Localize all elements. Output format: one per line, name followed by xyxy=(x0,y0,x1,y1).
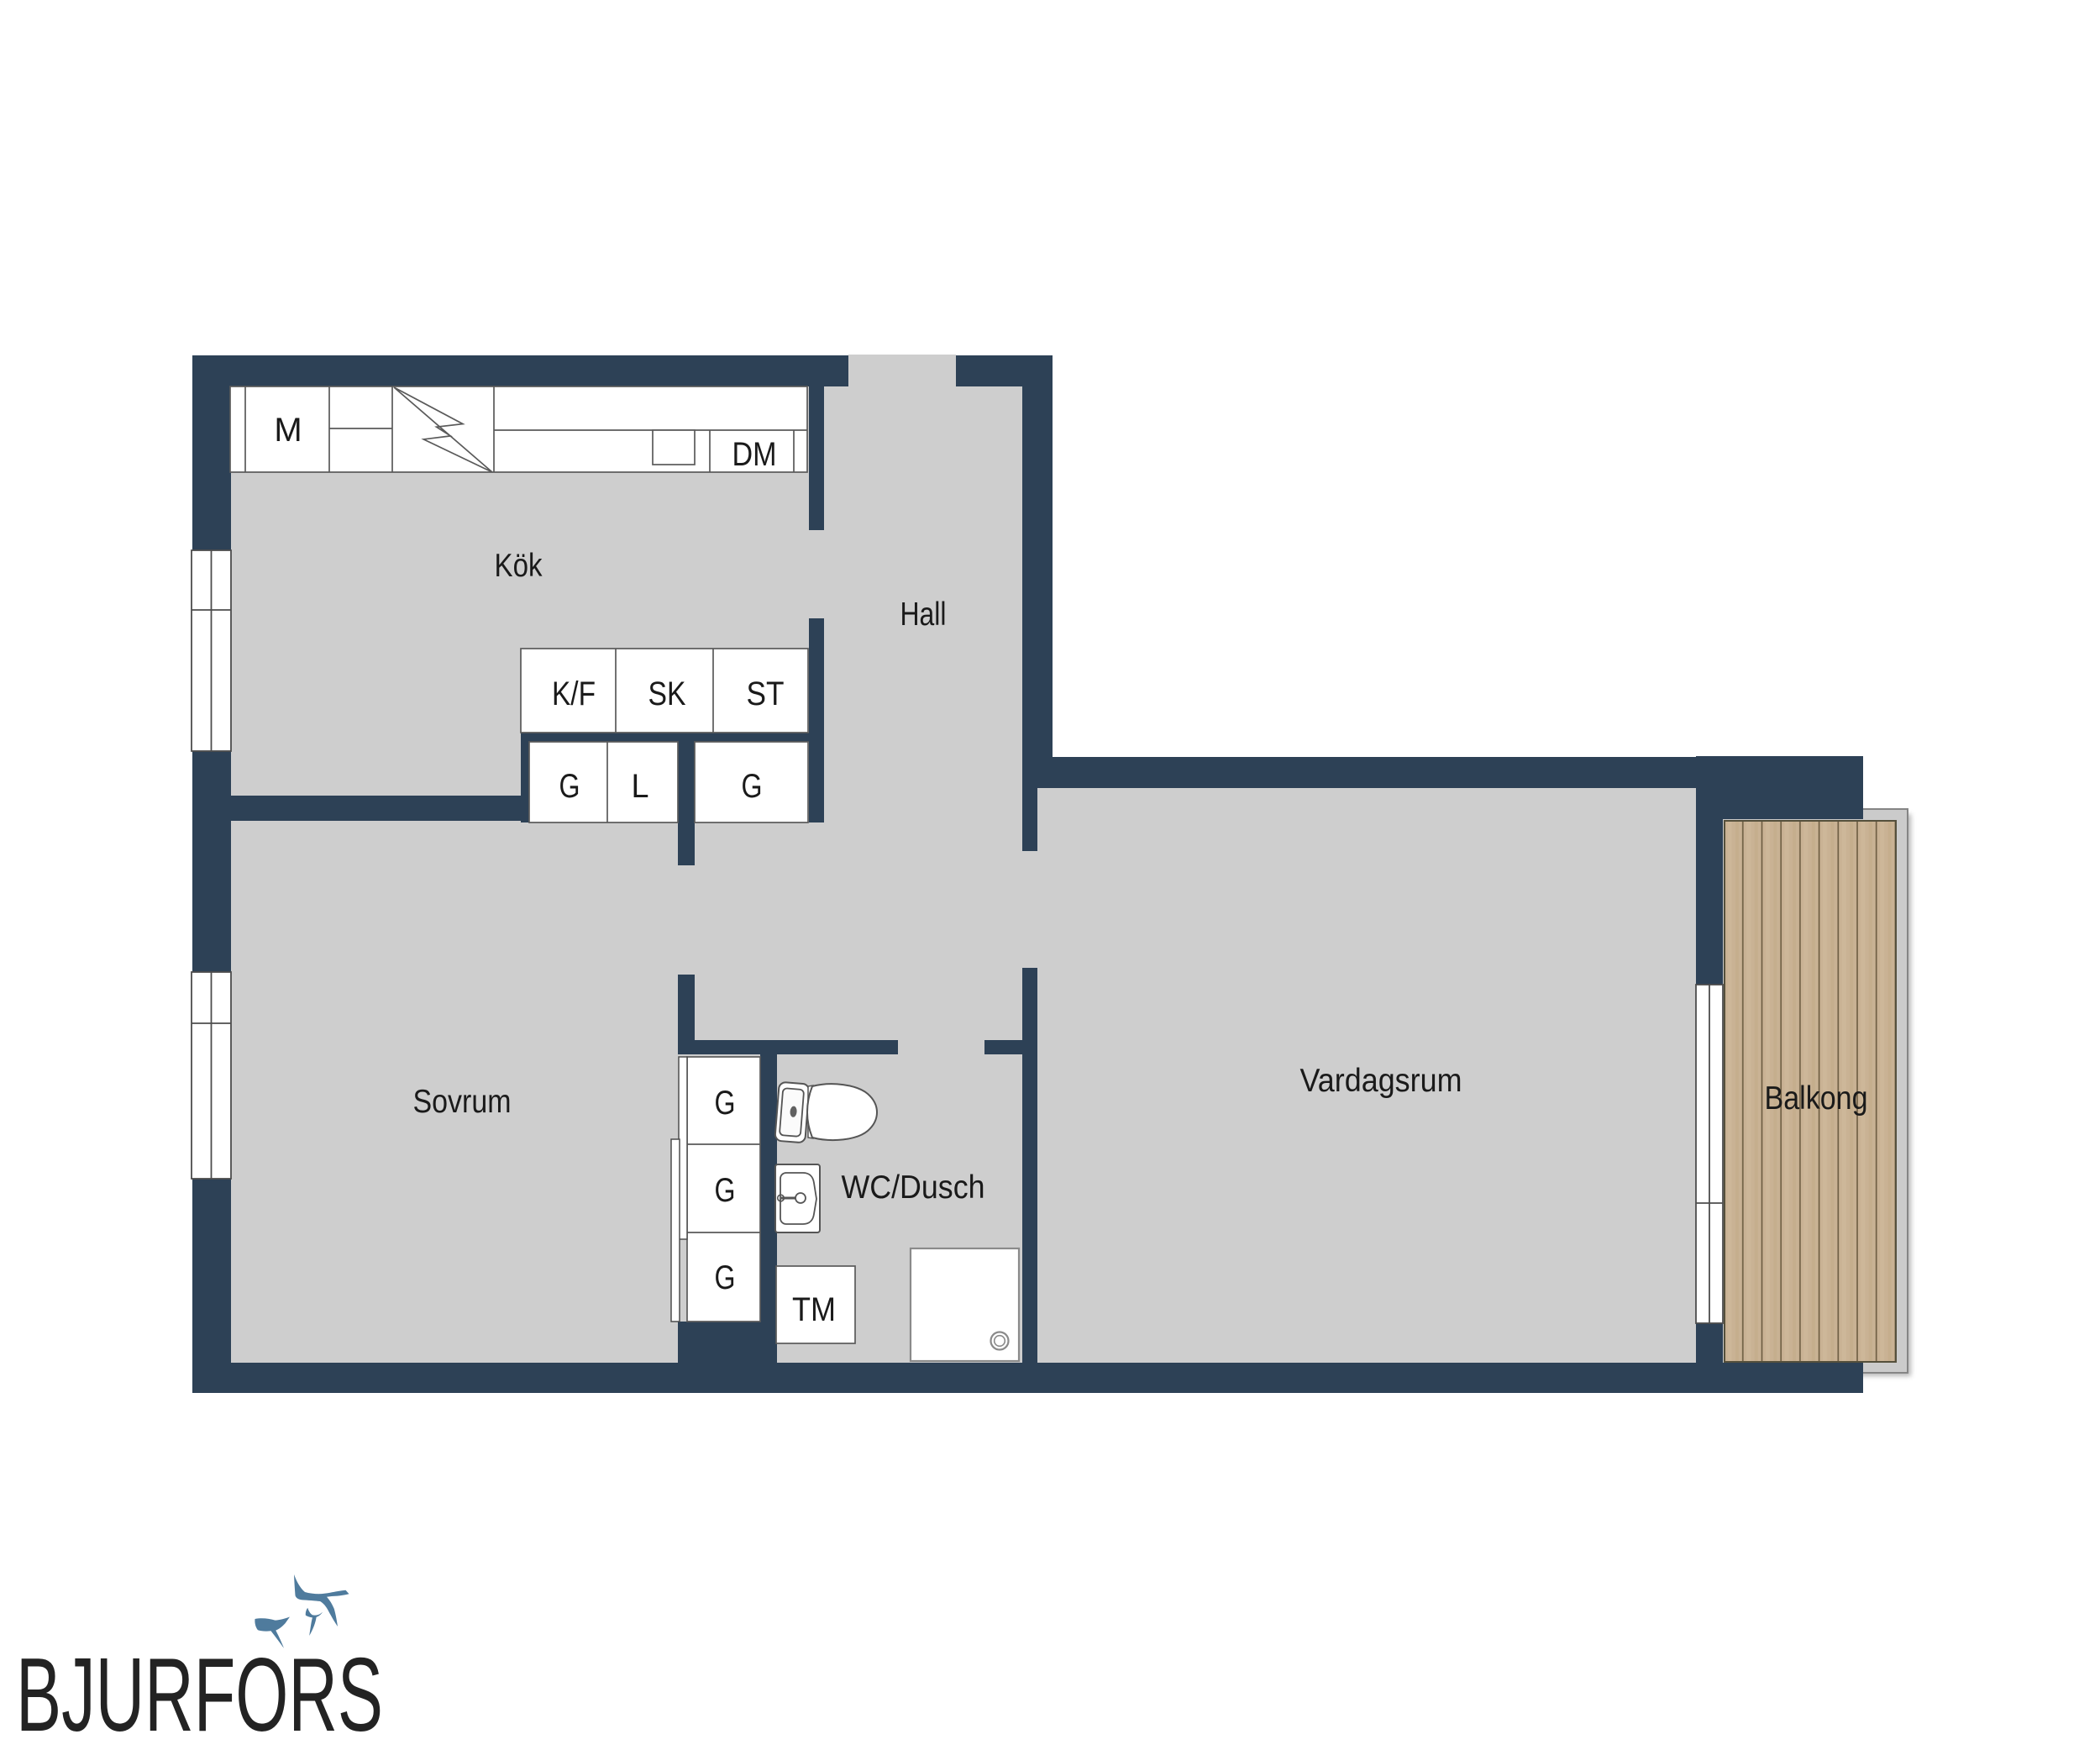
svg-text:G: G xyxy=(715,1085,736,1122)
svg-text:G: G xyxy=(715,1259,736,1296)
svg-text:K/F: K/F xyxy=(552,675,596,712)
svg-text:SK: SK xyxy=(648,675,686,712)
svg-text:TM: TM xyxy=(792,1291,836,1328)
svg-text:ST: ST xyxy=(747,675,785,712)
svg-text:Hall: Hall xyxy=(900,596,947,633)
svg-text:M: M xyxy=(274,412,302,449)
svg-text:Balkong: Balkong xyxy=(1765,1080,1868,1117)
svg-text:DM: DM xyxy=(732,436,777,473)
svg-text:Sovrum: Sovrum xyxy=(413,1084,512,1120)
svg-text:Vardagsrum: Vardagsrum xyxy=(1300,1063,1462,1099)
svg-text:G: G xyxy=(715,1172,736,1209)
svg-text:WC/Dusch: WC/Dusch xyxy=(842,1169,985,1206)
svg-text:G: G xyxy=(559,768,580,805)
svg-text:Kök: Kök xyxy=(495,548,543,584)
svg-text:BJURFORS: BJURFORS xyxy=(16,1637,383,1750)
svg-text:L: L xyxy=(632,768,649,805)
svg-text:G: G xyxy=(742,768,763,805)
